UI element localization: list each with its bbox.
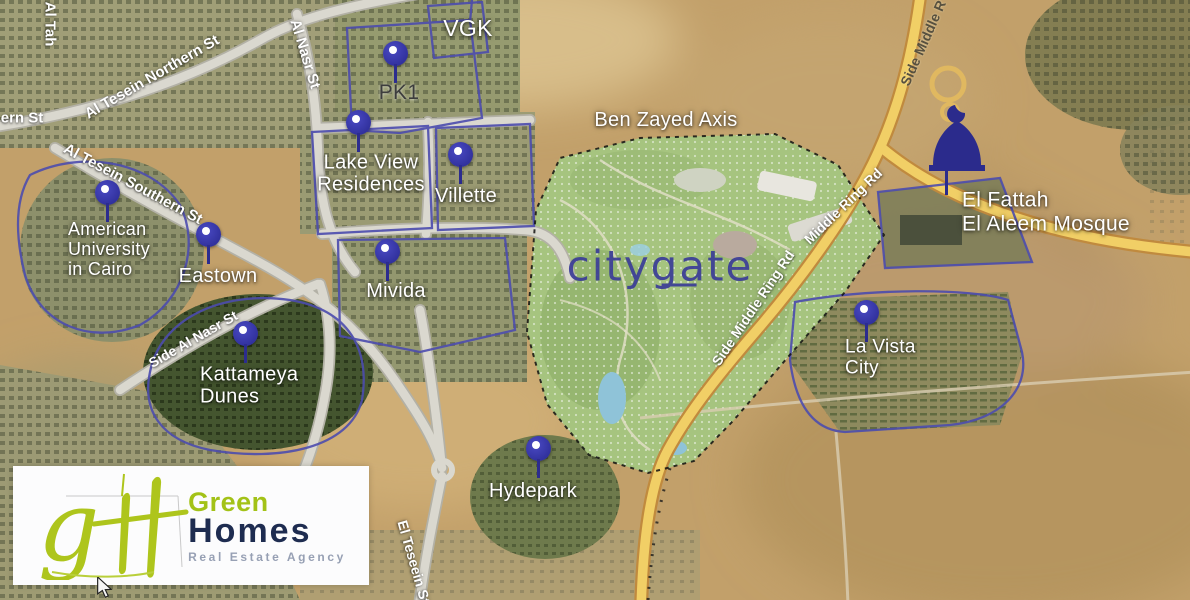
map-pin-lake-view-residences — [346, 110, 371, 135]
mouse-cursor — [96, 577, 114, 600]
place-label-lake-view-residences: Lake ViewResidences — [317, 152, 425, 197]
road-label-al-nasr-st: Al Nasr St — [286, 17, 323, 91]
road-label-el-teseein-st: El Teseein St — [394, 518, 433, 600]
place-label-vgk: VGK — [443, 16, 492, 42]
place-label-mivida: Mivida — [366, 280, 426, 302]
place-label-pk1: PK1 — [379, 81, 420, 105]
place-label-villette: Villette — [435, 185, 497, 207]
road-label-al-tesein-northern-st: Al Tesein Northern St — [82, 32, 222, 123]
map-image: VGKPK1Lake ViewResidencesVilletteAmerica… — [0, 0, 1190, 600]
map-pin-mivida — [375, 239, 400, 264]
road-label-middle-ring-rd: Middle Ring Rd — [801, 165, 885, 247]
place-label-american-university-in-cairo: AmericanUniversityin Cairo — [68, 219, 150, 279]
road-label-al-tah: Al Tah — [42, 2, 59, 47]
place-label-kattameya-dunes: KattameyaDunes — [200, 364, 298, 409]
road-label-side-al-nasr-st: Side Al Nasr St — [146, 307, 240, 371]
map-pin-eastown — [196, 222, 221, 247]
mosque-icon — [929, 103, 985, 202]
green-homes-watermark: g Green Homes Real Estate Agency — [13, 466, 369, 585]
road-label-al-tesein-southern-st: Al Tesein Southern St — [61, 140, 206, 228]
map-pin-villette — [448, 142, 473, 167]
map-pin-kattameya-dunes — [233, 321, 258, 346]
map-pin-la-vista-city — [854, 300, 879, 325]
place-label-hydepark: Hydepark — [489, 480, 577, 502]
svg-text:g: g — [38, 472, 99, 580]
green-homes-monogram: g — [36, 472, 194, 580]
map-pin-hydepark — [526, 436, 551, 461]
road-label-ern-st: ern St — [1, 110, 44, 127]
road-label-side-middle-r: Side Middle R — [897, 0, 949, 88]
place-label-el-fattah-el-aleem-mosque: El FattahEl Aleem Mosque — [962, 188, 1130, 235]
place-label-eastown: Eastown — [179, 265, 258, 287]
map-pin-pk1 — [383, 41, 408, 66]
citygate-development-logo: citygate — [567, 242, 754, 291]
place-label-ben-zayed-axis: Ben Zayed Axis — [594, 109, 737, 131]
watermark-brand-homes: Homes — [188, 514, 346, 548]
watermark-brand-tagline: Real Estate Agency — [188, 551, 346, 563]
place-label-la-vista-city: La VistaCity — [845, 337, 916, 380]
